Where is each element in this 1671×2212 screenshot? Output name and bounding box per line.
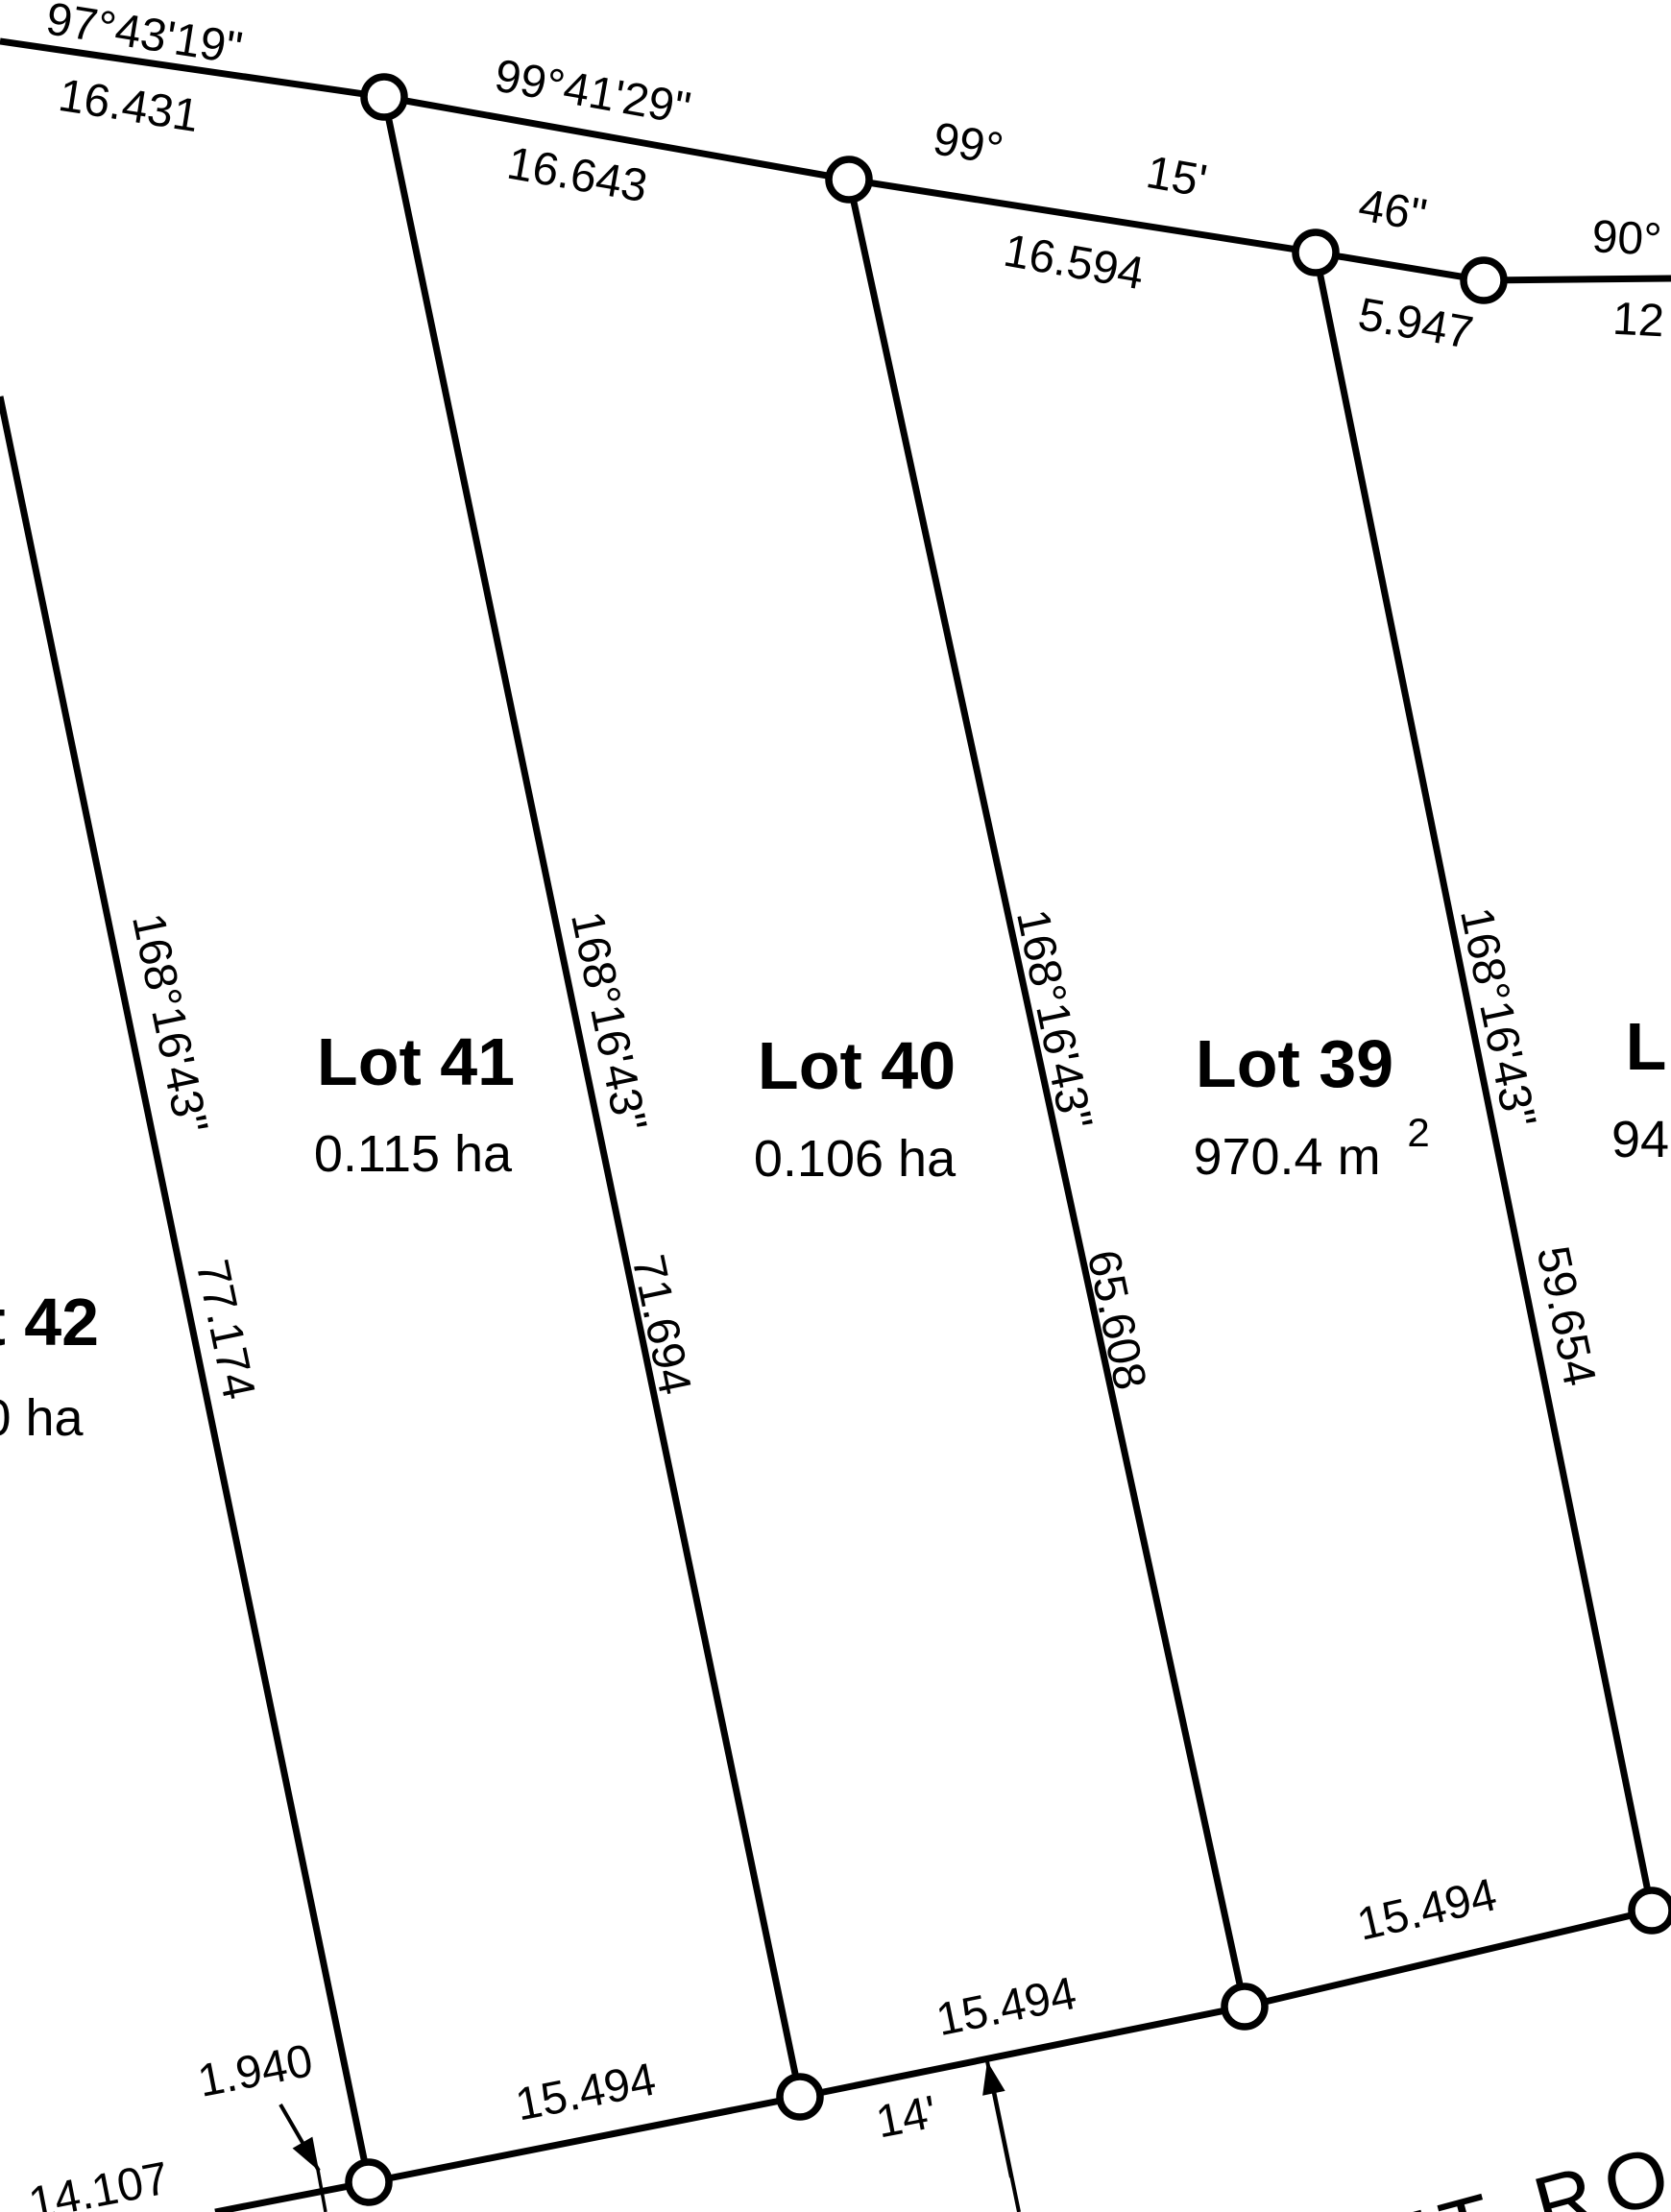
bearing-side-lot38: 168°16'43" bbox=[1452, 903, 1542, 1131]
distance-side-lot41: 77.174 bbox=[188, 1256, 262, 1403]
bearing-top-seg2: 99°41'29" bbox=[492, 54, 694, 133]
road-name-partial: ETT RO bbox=[1307, 2130, 1671, 2212]
frontage-lot39: 15.494 bbox=[1353, 1872, 1501, 1949]
distance-side-lot38: 59.654 bbox=[1529, 1242, 1603, 1389]
lot-38-area: 94 bbox=[1611, 1114, 1669, 1166]
distance-top-seg5: 12 bbox=[1611, 297, 1665, 346]
bearing-side-lot41: 168°16'43" bbox=[124, 909, 214, 1137]
bearing-top-seg1: 97°43'19" bbox=[43, 0, 246, 73]
lot-41-title: Lot 41 bbox=[317, 1028, 515, 1095]
distance-top-seg3: 16.594 bbox=[1001, 228, 1148, 299]
distance-bottom-left: 14.107 bbox=[25, 2155, 172, 2212]
bearing-top-seg3-deg: 99° bbox=[930, 116, 1006, 174]
frontage-lot41: 15.494 bbox=[512, 2056, 659, 2128]
distance-top-seg2: 16.643 bbox=[504, 141, 651, 211]
bearing-side-lot39: 168°16'43" bbox=[1008, 905, 1099, 1133]
survey-plan: 97°43'19"16.43199°41'29"16.64399°15'16.5… bbox=[0, 0, 1671, 2212]
distance-offset-1940: 1.940 bbox=[194, 2038, 316, 2105]
lot-40-area: 0.106 ha bbox=[754, 1133, 956, 1185]
distance-top-seg4: 5.947 bbox=[1355, 292, 1477, 357]
lot-40-title: Lot 40 bbox=[758, 1032, 956, 1099]
lot-42-area: 0 ha bbox=[0, 1392, 84, 1444]
plan-labels: 97°43'19"16.43199°41'29"16.64399°15'16.5… bbox=[0, 0, 1671, 2212]
distance-side-lot40: 71.694 bbox=[624, 1251, 698, 1398]
distance-top-seg1: 16.431 bbox=[56, 73, 203, 140]
lot-39-area-sup: 2 bbox=[1407, 1113, 1429, 1153]
distance-side-lot39: 65.608 bbox=[1079, 1246, 1153, 1393]
bearing-side-lot40: 168°16'43" bbox=[563, 907, 653, 1135]
lot-42-title: Lot 42 bbox=[0, 1288, 99, 1356]
frontage-lot40: 15.494 bbox=[932, 1971, 1079, 2044]
lot-38-title: L bbox=[1626, 1013, 1667, 1080]
road-width-14ft: 14' bbox=[873, 2089, 941, 2146]
lot-39-title: Lot 39 bbox=[1196, 1030, 1393, 1097]
lot-39-area: 970.4 m bbox=[1193, 1131, 1380, 1183]
bearing-top-seg3-min: 15' bbox=[1143, 150, 1210, 205]
bearing-top-seg5: 90° bbox=[1590, 214, 1662, 264]
bearing-top-seg3-sec: 46" bbox=[1355, 182, 1430, 240]
lot-41-area: 0.115 ha bbox=[314, 1128, 512, 1180]
